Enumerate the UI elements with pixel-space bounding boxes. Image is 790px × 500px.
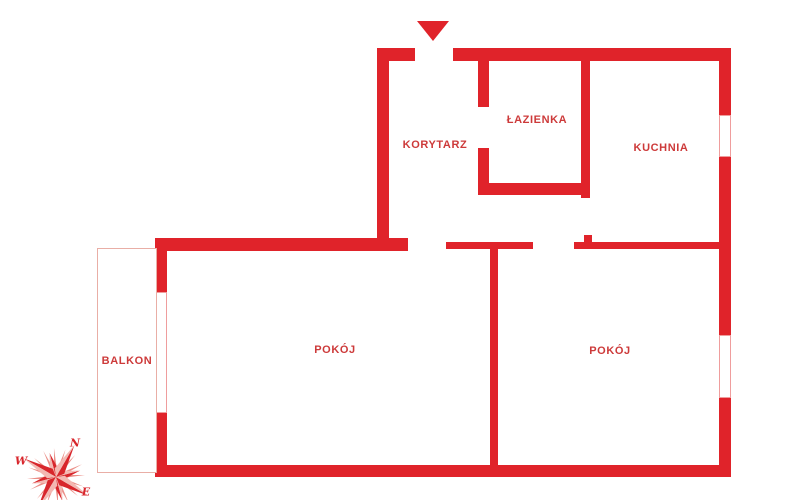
wall-segment	[377, 48, 389, 250]
wall-segment	[584, 235, 592, 243]
wall-segment	[453, 48, 731, 61]
room-label-kuchnia: KUCHNIA	[634, 142, 689, 154]
compass-north-label: N	[70, 437, 80, 450]
wall-segment	[155, 238, 408, 251]
floor-plan: KORYTARZ ŁAZIENKA KUCHNIA POKÓJ POKÓJ BA…	[0, 0, 790, 500]
wall-segment	[478, 60, 489, 107]
compass-east-label: E	[82, 486, 90, 499]
wall-segment	[719, 48, 731, 115]
room-label-korytarz: KORYTARZ	[403, 139, 468, 151]
wall-segment	[478, 183, 590, 195]
wall-segment	[574, 242, 731, 249]
entrance-arrow-icon	[417, 21, 449, 41]
wall-segment	[581, 60, 590, 198]
wall-segment	[490, 248, 498, 468]
room-label-lazienka: ŁAZIENKA	[507, 114, 567, 126]
wall-segment	[155, 465, 731, 477]
room-label-pokoj-left: POKÓJ	[314, 344, 356, 356]
compass-west-label: W	[15, 455, 27, 468]
room-label-balkon: BALKON	[102, 355, 153, 367]
window-kitchen	[719, 115, 731, 157]
window-room-right	[719, 335, 731, 398]
room-label-pokoj-right: POKÓJ	[589, 345, 631, 357]
